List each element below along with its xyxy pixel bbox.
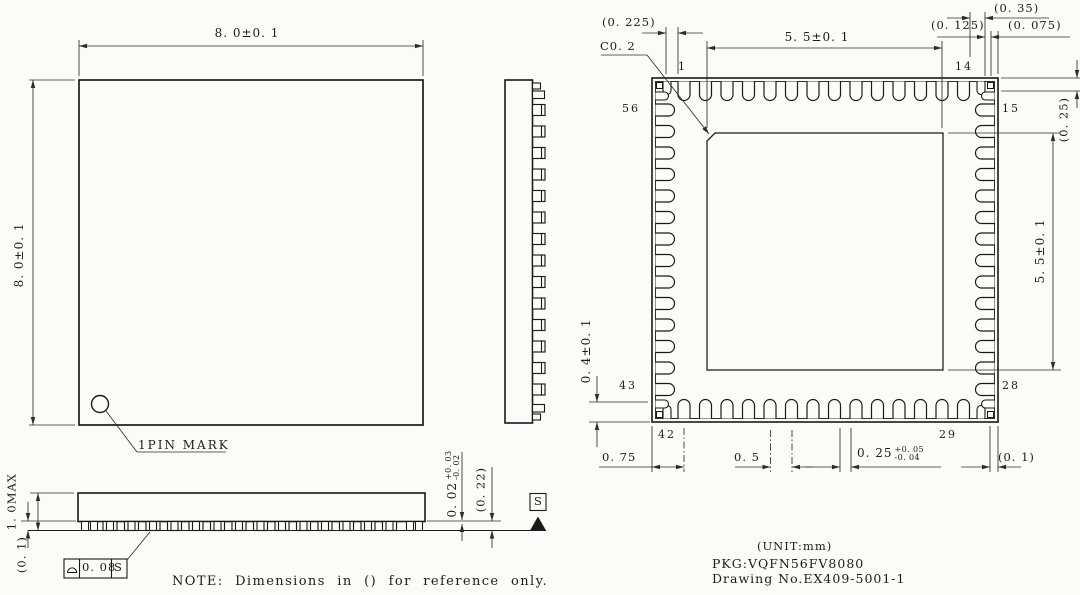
pin-number-29: 29 [939, 429, 957, 442]
package-name: PKG:VQFN56FV8080 [712, 557, 864, 571]
datum-s-label: S [530, 495, 546, 508]
package-dimension-drawing: 8. 0±0. 1 8. 0±0. 1 1PIN MARK (0. 225) C… [0, 0, 1080, 595]
flatness-tolerance-value: 0. 08 [82, 561, 116, 574]
pin-number-14: 14 [955, 61, 973, 74]
reference-note: NOTE: Dimensions in () for reference onl… [172, 575, 548, 590]
dim-standoff-tolerance: +0. 03 -0. 02 [445, 451, 461, 480]
pin-number-15: 15 [1002, 103, 1020, 116]
dim-pad-chamfer: C0. 2 [600, 40, 636, 53]
pin-number-43: 43 [619, 380, 637, 393]
unit-note: (UNIT:mm) [757, 540, 832, 553]
dim-lead-width: 0. 25 +0. 05 -0. 04 [857, 446, 924, 462]
bottom-view-linework [589, 12, 1080, 472]
dim-lead-width-tolerance: +0. 05 -0. 04 [895, 446, 924, 462]
dim-package-height: 1. 0MAX [5, 468, 18, 536]
dim-lead-thickness: (0. 22) [474, 461, 487, 519]
dim-standoff-ref: (0. 1) [15, 529, 28, 581]
dim-standoff-tol-minus: -0. 02 [453, 451, 461, 480]
dim-pad-height: 5. 5±0. 1 [1034, 201, 1048, 301]
pin-number-56: 56 [622, 103, 640, 116]
dim-top-view-height: 8. 0±0. 1 [13, 210, 27, 300]
dim-top-view-width: 8. 0±0. 1 [202, 27, 292, 41]
dim-pin-pitch: 0. 5 [734, 451, 760, 464]
dim-pad-width: 5. 5±0. 1 [767, 31, 867, 45]
dim-standoff: 0. 02 +0. 03 -0. 02 [445, 443, 461, 525]
dim-lead-width-value: 0. 25 [857, 447, 893, 461]
dim-corner-offset: (0. 225) [602, 16, 656, 29]
pin-number-28: 28 [1002, 380, 1020, 393]
dim-edge-to-pin: 0. 75 [602, 451, 636, 464]
drawing-number: Drawing No.EX409-5001-1 [712, 572, 905, 586]
dim-lead-width-tol-minus: -0. 04 [895, 454, 924, 462]
dim-corner-a: (0. 35) [994, 2, 1039, 15]
pin1-mark-label: 1PIN MARK [138, 439, 230, 453]
side-view-linework [505, 80, 545, 423]
top-view-linework [29, 40, 423, 452]
dim-standoff-value: 0. 02 [446, 482, 460, 518]
flatness-datum-ref: S [114, 561, 123, 574]
pin-number-42: 42 [658, 429, 676, 442]
dim-corner-c: (0. 075) [1008, 19, 1062, 32]
dim-lead-length: 0. 4±0. 1 [580, 301, 594, 401]
dim-corner-lead-length: (0. 25) [1057, 91, 1070, 149]
dim-corner-b: (0. 125) [931, 19, 985, 32]
dim-corner-gap: (0. 1) [998, 451, 1035, 464]
pin-number-1: 1 [678, 61, 687, 74]
